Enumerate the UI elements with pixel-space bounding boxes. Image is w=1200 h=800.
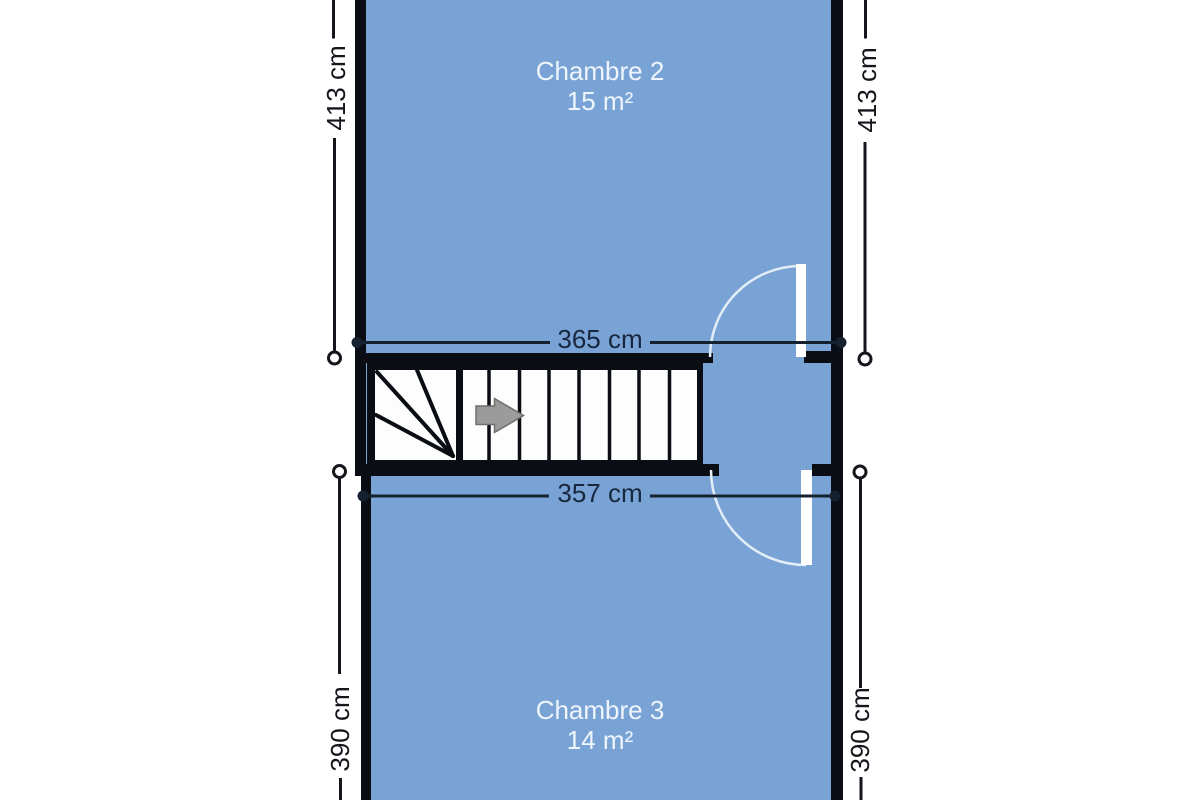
svg-text:Chambre 2: Chambre 2 (536, 56, 665, 86)
svg-text:357 cm: 357 cm (557, 478, 642, 508)
svg-text:413 cm: 413 cm (852, 47, 882, 132)
svg-text:365 cm: 365 cm (557, 324, 642, 354)
svg-text:Chambre 3: Chambre 3 (536, 695, 665, 725)
svg-text:14 m²: 14 m² (567, 725, 634, 755)
svg-text:413 cm: 413 cm (321, 45, 351, 130)
svg-text:15 m²: 15 m² (567, 86, 634, 116)
svg-text:390 cm: 390 cm (325, 686, 355, 771)
svg-text:390 cm: 390 cm (845, 687, 875, 772)
